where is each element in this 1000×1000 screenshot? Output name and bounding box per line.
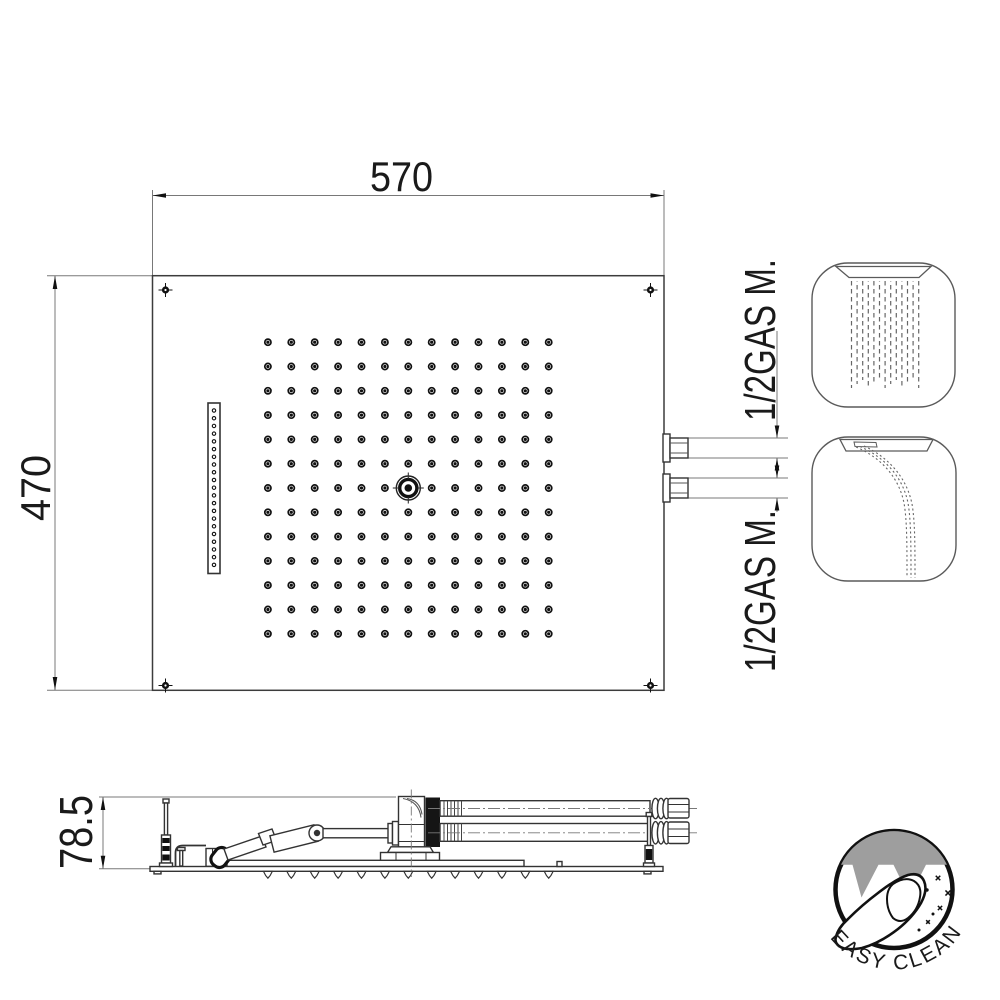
nozzle-dot (524, 535, 527, 538)
technical-drawing-page: 570 470 (0, 0, 1000, 1000)
nozzle-dot (407, 632, 410, 635)
slot-hole (212, 501, 215, 504)
nozzle-dot (407, 608, 410, 611)
nozzle-dot (454, 511, 457, 514)
slot-hole (212, 486, 215, 489)
nozzle-dot (500, 632, 503, 635)
nozzle-dot (524, 365, 527, 368)
nozzle-dot (547, 632, 550, 635)
nozzle-dot (313, 535, 316, 538)
nozzle-dot (500, 584, 503, 587)
nozzle-dot (477, 438, 480, 441)
nozzle-dot (524, 511, 527, 514)
nozzle-dot (500, 389, 503, 392)
nozzle-dot (266, 559, 269, 562)
nozzle-dot (313, 584, 316, 587)
nozzle-dot (290, 608, 293, 611)
nozzle-dot (500, 608, 503, 611)
right-screw-tip (644, 871, 651, 874)
spray-tooth (334, 871, 343, 878)
nozzle-dot (547, 511, 550, 514)
nozzle-dot (266, 535, 269, 538)
nozzle-dot (454, 341, 457, 344)
piston-rod (323, 829, 390, 838)
slot-hole (212, 424, 215, 427)
spray-tooth (498, 871, 507, 878)
nozzle-dot (290, 462, 293, 465)
spray-nozzle-teeth (264, 871, 554, 878)
screw-center (164, 289, 166, 291)
nozzle-dot (477, 365, 480, 368)
slot-hole (212, 417, 215, 420)
nozzle-dot (266, 486, 269, 489)
nozzle-dot (547, 341, 550, 344)
spray-tooth (264, 871, 273, 878)
nozzle-dot (524, 559, 527, 562)
nozzle-dot (383, 438, 386, 441)
nozzle-dot (383, 584, 386, 587)
nozzle-dot (383, 365, 386, 368)
nozzle-dot (407, 414, 410, 417)
spray-tooth (451, 871, 460, 878)
nozzle-dot (337, 389, 340, 392)
nozzle-dot (430, 535, 433, 538)
nozzle-dot (290, 389, 293, 392)
spray-tooth (427, 871, 436, 878)
nozzle-dot (430, 584, 433, 587)
nozzle-dot (383, 511, 386, 514)
dim-arrow-left (153, 193, 167, 198)
supply-pipes (428, 798, 697, 844)
nozzle-dot (524, 584, 527, 587)
nozzle-dot (337, 608, 340, 611)
waterfall-slot (208, 403, 220, 574)
side-view: 78.5 (50, 790, 697, 879)
nozzle-dot (477, 341, 480, 344)
nozzle-dot (430, 389, 433, 392)
nozzle-dot (500, 365, 503, 368)
nozzle-dot (500, 414, 503, 417)
nozzle-dot (360, 535, 363, 538)
nozzle-dot (383, 414, 386, 417)
nozzle-dot (454, 535, 457, 538)
nozzle-dot (290, 632, 293, 635)
screw-center (164, 684, 166, 686)
spray-tooth (474, 871, 483, 878)
nozzle-dot (313, 438, 316, 441)
nozzle-dot (524, 486, 527, 489)
nozzle-dot (290, 535, 293, 538)
nozzle-dot (407, 341, 410, 344)
nozzle-dot (266, 462, 269, 465)
nozzle-dot (477, 608, 480, 611)
nozzle-dot (477, 559, 480, 562)
nozzle-dot (266, 389, 269, 392)
nozzle-dot (360, 486, 363, 489)
nozzle-dot (430, 608, 433, 611)
pipe-body-top (670, 438, 688, 458)
screw-center (649, 289, 651, 291)
nozzle-dot (454, 486, 457, 489)
slot-hole (212, 409, 215, 412)
easy-clean-logo: EASY CLEAN (826, 831, 967, 975)
nozzle-dot (290, 584, 293, 587)
nozzle-dot (477, 632, 480, 635)
pipe-end-fittings (652, 798, 689, 844)
nozzle-dot (454, 438, 457, 441)
slot-hole (212, 540, 215, 543)
slot-hole (212, 471, 215, 474)
nozzle-dot (266, 608, 269, 611)
nozzle-dot (337, 365, 340, 368)
nozzle-dot (477, 462, 480, 465)
manifold-base (381, 853, 440, 861)
waterfall-streams (856, 446, 915, 578)
nozzle-dot (383, 535, 386, 538)
slot-holes (212, 409, 215, 567)
dimension-height-label: 470 (12, 455, 59, 521)
dimension-width: 570 (153, 153, 665, 276)
connection-thread-label-bottom: 1/2GAS M. (736, 510, 785, 672)
top-view: 570 470 (12, 153, 788, 693)
spray-tooth (357, 871, 366, 878)
nozzle-dot (524, 414, 527, 417)
spray-tooth (310, 871, 319, 878)
nozzle-dot (266, 365, 269, 368)
nozzle-dot (500, 438, 503, 441)
nozzle-dot (454, 389, 457, 392)
nozzle-dot (454, 365, 457, 368)
pipe-flange-top (663, 434, 670, 462)
nozzle-dot (266, 632, 269, 635)
nozzle-dot (430, 632, 433, 635)
nozzle-dot (266, 511, 269, 514)
spray-tooth (544, 871, 553, 878)
nozzle-dot (383, 341, 386, 344)
slot-hole (212, 494, 215, 497)
nozzle-dot (383, 559, 386, 562)
nozzle-dot (337, 462, 340, 465)
rain-lines (852, 281, 919, 388)
arm-segment (224, 836, 266, 860)
dimension-width-label: 570 (370, 153, 433, 200)
nozzle-dot (360, 511, 363, 514)
nozzle-dot (266, 414, 269, 417)
nozzle-dot (360, 365, 363, 368)
nozzle-dot (290, 341, 293, 344)
nozzle-dot (313, 486, 316, 489)
nozzle-dot (430, 559, 433, 562)
screw-center (649, 684, 651, 686)
dimension-height: 470 (12, 276, 153, 691)
nozzle-dot (360, 608, 363, 611)
slot-hole (212, 555, 215, 558)
nozzle-dot (266, 341, 269, 344)
rain-spray-icon (812, 263, 955, 407)
dim-arrow-top (53, 276, 58, 289)
nozzle-dot (313, 341, 316, 344)
nozzle-dot (337, 632, 340, 635)
nozzle-dot (500, 486, 503, 489)
base-plate-edge (150, 867, 663, 872)
nozzle-dot (313, 462, 316, 465)
nozzle-dot (407, 559, 410, 562)
nozzle-dot (500, 341, 503, 344)
nozzle-dot (454, 632, 457, 635)
nozzle-dot (266, 584, 269, 587)
nozzle-dot (360, 438, 363, 441)
nozzle-dot (524, 462, 527, 465)
nozzle-dot (266, 438, 269, 441)
nozzle-dot (430, 341, 433, 344)
pipe-flange-bottom (663, 474, 670, 502)
slot-hole (212, 478, 215, 481)
nozzle-dot (477, 486, 480, 489)
shower-plate-face (153, 276, 665, 691)
spray-mode-icons (812, 263, 956, 581)
nozzle-dot (454, 462, 457, 465)
nozzle-dot (337, 535, 340, 538)
nozzle-dot (407, 511, 410, 514)
nozzle-dot (383, 632, 386, 635)
nozzle-dot (290, 511, 293, 514)
nozzle-dot (430, 511, 433, 514)
nozzle-dot (383, 462, 386, 465)
nozzle-dot (524, 438, 527, 441)
nozzle-dot (337, 414, 340, 417)
nozzle-dot (547, 559, 550, 562)
nozzle-dot (407, 438, 410, 441)
nozzle-dot (337, 511, 340, 514)
nozzle-dot (477, 584, 480, 587)
nozzle-dot (313, 559, 316, 562)
pipe-body-bottom (670, 478, 688, 498)
nozzle-dot (290, 486, 293, 489)
inlet-pipes-top-view: 1/2GAS M. 1/2GAS M. (663, 259, 788, 672)
slot-hole (212, 455, 215, 458)
nozzle-dot (500, 511, 503, 514)
nozzle-dot (337, 559, 340, 562)
nozzle-dot (383, 486, 386, 489)
nozzle-dot (430, 486, 433, 489)
nozzle-dot (407, 389, 410, 392)
waterfall-spray-icon (812, 437, 956, 581)
nozzle-dot (500, 559, 503, 562)
nozzle-dot (547, 535, 550, 538)
spray-tooth (287, 871, 296, 878)
manifold-foot (388, 847, 434, 853)
nozzle-dot (524, 389, 527, 392)
nozzle-dot (407, 462, 410, 465)
nozzle-dot (360, 584, 363, 587)
slot-hole (212, 548, 215, 551)
nozzle-dot (547, 462, 550, 465)
nozzle-dot (360, 389, 363, 392)
nozzle-dot (313, 365, 316, 368)
slot-hole (212, 463, 215, 466)
nozzle-dot (524, 632, 527, 635)
nozzle-dot (360, 462, 363, 465)
nozzle-dot (430, 365, 433, 368)
small-pin (178, 848, 186, 867)
nozzle-dot (547, 414, 550, 417)
nozzle-dot (430, 462, 433, 465)
nozzle-dot (290, 414, 293, 417)
nozzle-dot (477, 389, 480, 392)
slot-hole (212, 440, 215, 443)
nozzle-dot (313, 389, 316, 392)
small-stud (557, 862, 562, 867)
nozzle-dot (454, 414, 457, 417)
slot-hole (212, 525, 215, 528)
nozzle-dot (477, 414, 480, 417)
nozzle-dot (430, 414, 433, 417)
slot-hole (212, 447, 215, 450)
nozzle-dot (313, 632, 316, 635)
nozzle-dot (477, 535, 480, 538)
nozzle-dot (407, 365, 410, 368)
nozzle-dot (290, 438, 293, 441)
nozzle-dot (360, 559, 363, 562)
shower-head-technical-drawing: 570 470 (0, 0, 1000, 1000)
nozzle-dot (337, 341, 340, 344)
nozzle-dot (500, 462, 503, 465)
nozzle-dot (547, 438, 550, 441)
nozzle-dot (360, 341, 363, 344)
nozzle-dot (337, 584, 340, 587)
nozzle-dot (360, 632, 363, 635)
nozzle-dot (454, 584, 457, 587)
nozzle-dot (547, 584, 550, 587)
nozzle-dot (290, 365, 293, 368)
nozzle-dot (477, 511, 480, 514)
nozzle-dot (454, 559, 457, 562)
spray-tooth (521, 871, 530, 878)
nozzle-dot (360, 414, 363, 417)
nozzle-dot (337, 438, 340, 441)
slot-hole (212, 517, 215, 520)
nozzle-dot (337, 486, 340, 489)
nozzle-dot (547, 365, 550, 368)
manifold-gasket (426, 798, 441, 848)
dim-arrow-bottom (53, 677, 58, 690)
slot-hole (212, 509, 215, 512)
nozzle-dot (500, 535, 503, 538)
nozzle-dot (383, 608, 386, 611)
nozzle-dot (290, 559, 293, 562)
left-screw-tip (154, 871, 161, 874)
spray-tooth (381, 871, 390, 878)
nozzle-dot (547, 389, 550, 392)
nozzle-dot (383, 389, 386, 392)
nozzle-dot (313, 414, 316, 417)
dimension-depth-label: 78.5 (50, 795, 102, 869)
nozzle-dot (524, 341, 527, 344)
nozzle-dot (430, 438, 433, 441)
nozzle-dot (313, 511, 316, 514)
inner-plate-edge (213, 860, 524, 866)
nozzle-dot (407, 535, 410, 538)
nozzle-dot (454, 608, 457, 611)
nozzle-dot (547, 608, 550, 611)
nozzle-dot (524, 608, 527, 611)
nozzle-dot (407, 584, 410, 587)
slot-hole (212, 432, 215, 435)
slot-hole (212, 563, 215, 566)
nozzle-dot (547, 486, 550, 489)
slot-hole (212, 532, 215, 535)
nozzle-dot (313, 608, 316, 611)
connection-thread-label-top: 1/2GAS M. (736, 259, 785, 421)
left-mounting-pin (160, 799, 173, 867)
dim-arrow-right (651, 193, 665, 198)
